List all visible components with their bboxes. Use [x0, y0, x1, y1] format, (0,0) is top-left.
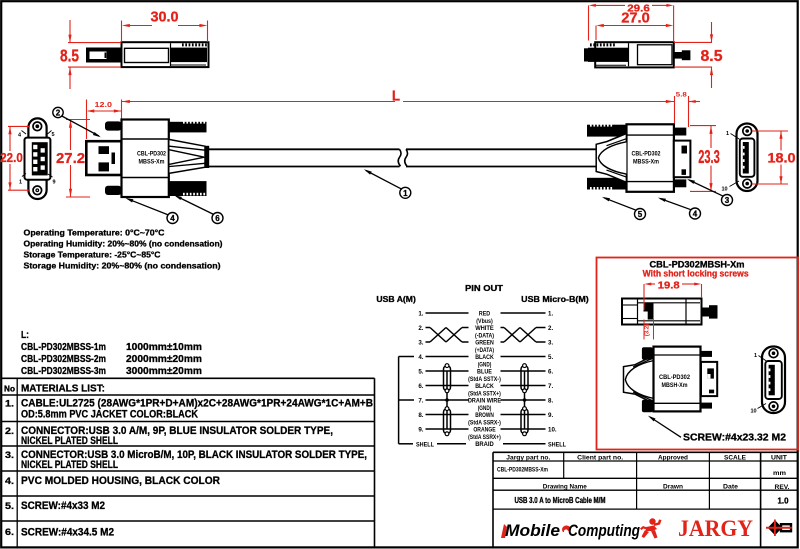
svg-text:PVC MOLDED HOUSING, BLACK COLO: PVC MOLDED HOUSING, BLACK COLOR — [21, 475, 220, 487]
svg-text:MATERIALS LIST:: MATERIALS LIST: — [21, 383, 105, 395]
svg-text:MBSS-Xm: MBSS-Xm — [633, 160, 659, 166]
svg-text:Operating Humidity: 20%~80% (n: Operating Humidity: 20%~80% (no condensa… — [24, 238, 223, 248]
svg-text:9.: 9. — [548, 412, 553, 419]
svg-text:5: 5 — [51, 132, 54, 138]
svg-text:REV.: REV. — [775, 484, 790, 491]
svg-text:3.: 3. — [548, 340, 553, 347]
svg-text:7.: 7. — [418, 398, 423, 405]
svg-text:2: 2 — [56, 109, 61, 118]
svg-text:L: L — [392, 88, 400, 105]
svg-text:1.: 1. — [5, 399, 14, 410]
svg-text:1: 1 — [726, 131, 729, 137]
svg-text:CBL-PD302: CBL-PD302 — [632, 152, 662, 158]
svg-text:4.: 4. — [418, 354, 423, 361]
svg-text:BLUE: BLUE — [477, 368, 492, 375]
svg-text:CBL-PD302MBSS-2m: CBL-PD302MBSS-2m — [21, 354, 106, 365]
svg-text:SCALE: SCALE — [724, 454, 746, 461]
svg-text:(StdA SSTX+): (StdA SSTX+) — [468, 390, 501, 397]
svg-text:(StdA SSRX-): (StdA SSRX-) — [468, 419, 501, 426]
svg-text:12.0: 12.0 — [95, 100, 113, 109]
svg-text:4: 4 — [170, 214, 175, 223]
svg-text:1: 1 — [754, 353, 757, 359]
svg-text:Jargy part no.: Jargy part no. — [506, 454, 550, 461]
svg-text:CBL-PD302MBSS-3m: CBL-PD302MBSS-3m — [21, 366, 106, 377]
svg-text:WHITE: WHITE — [475, 325, 494, 332]
svg-text:CBL-PD302MBSS-1m: CBL-PD302MBSS-1m — [21, 342, 106, 353]
svg-text:Operating Temperature: 0°C~70°: Operating Temperature: 0°C~70°C — [24, 227, 165, 237]
svg-text:CBL-PD302: CBL-PD302 — [137, 152, 167, 158]
svg-text:(StdA SSTX-): (StdA SSTX-) — [468, 376, 501, 383]
svg-text:18.0: 18.0 — [768, 150, 796, 165]
svg-text:8.5: 8.5 — [701, 48, 723, 65]
svg-text:SCREW:#4x33 M2: SCREW:#4x33 M2 — [21, 500, 105, 512]
svg-text:SCREW:#4x23.32 M2: SCREW:#4x23.32 M2 — [683, 431, 786, 443]
svg-text:3.: 3. — [5, 450, 14, 461]
svg-text:1: 1 — [403, 189, 408, 198]
svg-text:3: 3 — [725, 196, 730, 205]
svg-text:5.: 5. — [418, 369, 423, 376]
svg-text:SHELL: SHELL — [548, 441, 566, 448]
svg-text:NICKEL PLATED SHELL: NICKEL PLATED SHELL — [21, 435, 118, 447]
svg-text:L:: L: — [21, 330, 29, 341]
svg-text:8.: 8. — [418, 412, 423, 419]
svg-text:BRAID: BRAID — [475, 441, 494, 448]
svg-text:8.: 8. — [548, 398, 553, 405]
svg-text:6.: 6. — [418, 383, 423, 390]
svg-text:1: 1 — [19, 180, 22, 186]
svg-text:6.: 6. — [5, 527, 14, 538]
svg-text:Mobile: Mobile — [505, 521, 560, 540]
svg-text:30.0: 30.0 — [151, 10, 179, 26]
svg-text:(GND): (GND) — [478, 405, 492, 412]
svg-text:5.: 5. — [5, 501, 14, 512]
svg-text:BLACK: BLACK — [475, 383, 494, 390]
svg-text:10: 10 — [721, 187, 727, 193]
svg-text:BROWN: BROWN — [475, 412, 494, 419]
svg-text:USB 3.0 A to MicroB Cable M/M: USB 3.0 A to MicroB Cable M/M — [515, 496, 606, 505]
svg-text:8.5: 8.5 — [60, 46, 79, 66]
svg-text:1.: 1. — [548, 311, 553, 318]
svg-text:6.: 6. — [548, 369, 553, 376]
svg-text:Computing: Computing — [568, 521, 640, 540]
svg-text:9.: 9. — [418, 427, 423, 434]
svg-text:6: 6 — [215, 214, 220, 223]
svg-text:OD:5.8mm PVC JACKET COLOR:BLA: OD:5.8mm PVC JACKET COLOR:BLACK — [21, 409, 198, 421]
svg-text:MBSH-Xm: MBSH-Xm — [662, 383, 688, 389]
svg-text:SHELL: SHELL — [416, 441, 434, 448]
svg-text:Storage Humidity: 20%~80% (no: Storage Humidity: 20%~80% (no condensati… — [24, 260, 221, 270]
svg-text:SCREW:#4x34.5 M2: SCREW:#4x34.5 M2 — [21, 527, 114, 539]
svg-text:GREEN: GREEN — [475, 339, 494, 346]
svg-text:Date: Date — [723, 483, 738, 490]
svg-text:5.8: 5.8 — [676, 91, 687, 98]
svg-text:4: 4 — [693, 210, 698, 219]
svg-text:7.: 7. — [548, 383, 553, 390]
svg-text:2.: 2. — [548, 325, 553, 332]
svg-text:No: No — [4, 385, 15, 394]
svg-text:UNIT: UNIT — [771, 454, 788, 461]
svg-text:22.0: 22.0 — [0, 150, 23, 165]
svg-text:1.0: 1.0 — [778, 496, 789, 506]
svg-text:Client part no.: Client part no. — [577, 454, 623, 461]
svg-text:(+DATA): (+DATA) — [475, 347, 494, 354]
svg-text:(-DATA): (-DATA) — [475, 332, 494, 339]
svg-text:CBL-PD302: CBL-PD302 — [659, 375, 691, 381]
svg-text:4.: 4. — [5, 476, 14, 487]
svg-text:RED: RED — [479, 310, 491, 317]
svg-text:19.8: 19.8 — [658, 280, 680, 292]
svg-text:(GND): (GND) — [478, 361, 492, 368]
svg-text:5: 5 — [638, 210, 643, 219]
svg-text:1.: 1. — [418, 311, 423, 318]
svg-text:2.: 2. — [418, 325, 423, 332]
svg-text:USB Micro-B(M): USB Micro-B(M) — [521, 294, 589, 304]
svg-text:27.0: 27.0 — [621, 10, 650, 26]
svg-text:DRAIN WIRE: DRAIN WIRE — [468, 397, 501, 404]
svg-text:NICKEL PLATED SHELL: NICKEL PLATED SHELL — [21, 459, 118, 471]
svg-text:2000mm±20mm: 2000mm±20mm — [126, 354, 202, 365]
svg-text:(StdA SSRX+): (StdA SSRX+) — [468, 434, 501, 441]
svg-text:10.: 10. — [548, 427, 557, 434]
svg-text:1000mm±10mm: 1000mm±10mm — [126, 342, 202, 353]
svg-text:With short locking screws: With short locking screws — [643, 268, 749, 278]
svg-text:3000mm±20mm: 3000mm±20mm — [126, 366, 202, 377]
svg-text:MBSS-Xm: MBSS-Xm — [139, 160, 165, 166]
svg-text:USB A(M): USB A(M) — [376, 294, 416, 304]
svg-text:Storage Temperature: -25°C~85°: Storage Temperature: -25°C~85°C — [24, 249, 161, 259]
svg-text:10: 10 — [750, 409, 756, 415]
svg-text:Drawing Name: Drawing Name — [543, 483, 587, 490]
svg-text:23.3: 23.3 — [698, 147, 720, 167]
svg-text:(Vbus): (Vbus) — [476, 318, 492, 325]
svg-text:5.: 5. — [548, 354, 553, 361]
svg-text:9: 9 — [52, 180, 55, 186]
svg-text:(3.2): (3.2) — [645, 324, 651, 336]
svg-text:CBL-PD302MBSS-Xm: CBL-PD302MBSS-Xm — [497, 467, 548, 474]
svg-text:2.: 2. — [5, 426, 14, 437]
svg-text:3.: 3. — [418, 340, 423, 347]
svg-text:ORANGE: ORANGE — [473, 426, 495, 433]
svg-text:Drawn: Drawn — [663, 483, 683, 490]
svg-text:PIN OUT: PIN OUT — [465, 283, 504, 293]
svg-text:27.2: 27.2 — [56, 150, 85, 167]
svg-text:JARGY: JARGY — [678, 516, 753, 541]
svg-text:Approved: Approved — [658, 454, 688, 461]
svg-text:BLACK: BLACK — [475, 354, 494, 361]
svg-text:mm: mm — [773, 470, 786, 477]
